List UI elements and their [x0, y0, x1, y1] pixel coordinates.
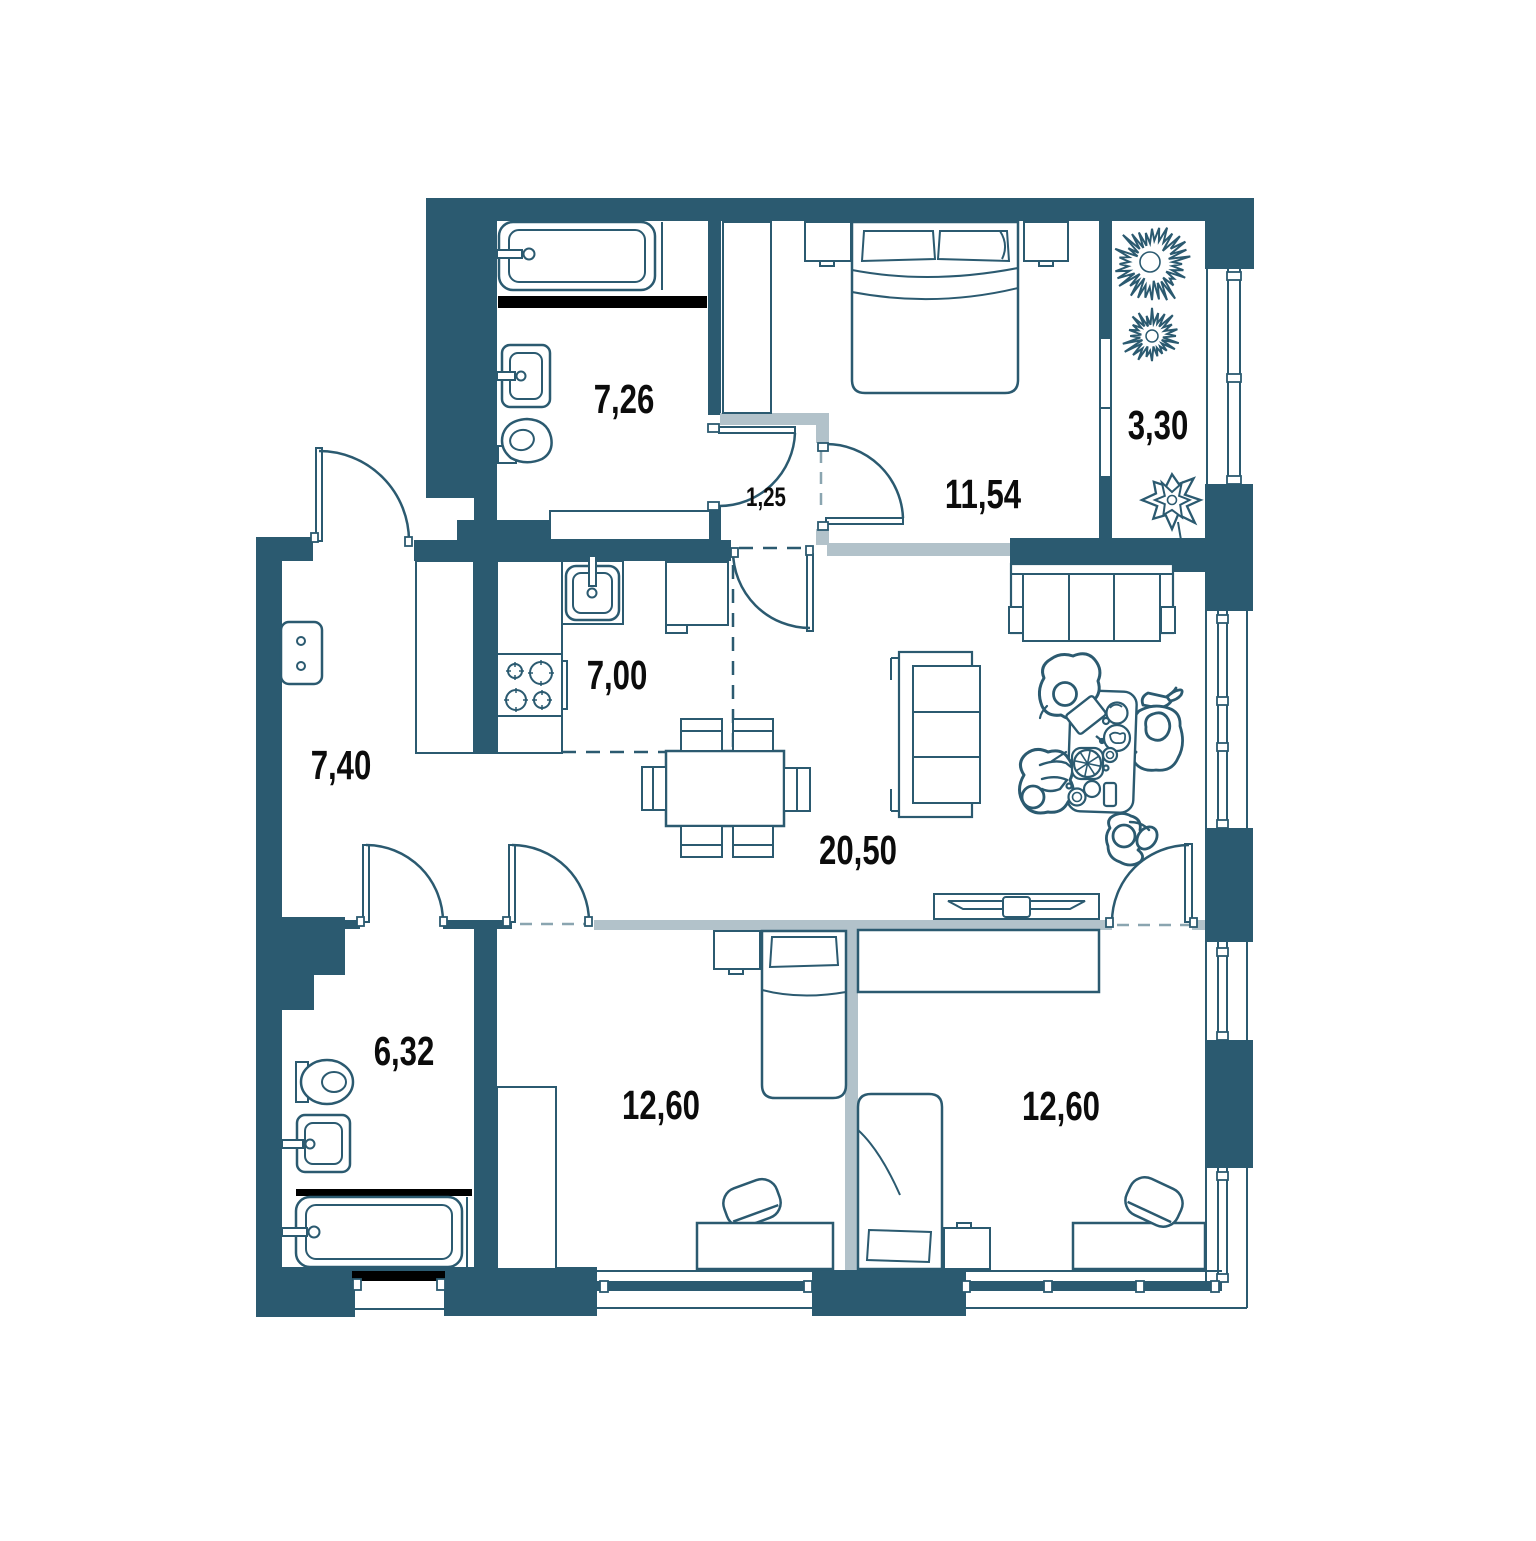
svg-text:6,32: 6,32	[374, 1028, 435, 1074]
svg-text:7,40: 7,40	[311, 742, 372, 788]
svg-text:12,60: 12,60	[1022, 1083, 1100, 1129]
svg-text:12,60: 12,60	[622, 1082, 700, 1128]
svg-text:3,30: 3,30	[1128, 402, 1189, 448]
svg-text:1,25: 1,25	[746, 482, 786, 512]
svg-text:7,26: 7,26	[594, 376, 655, 422]
svg-text:11,54: 11,54	[945, 471, 1022, 517]
svg-text:20,50: 20,50	[819, 827, 897, 873]
svg-text:7,00: 7,00	[587, 652, 648, 698]
